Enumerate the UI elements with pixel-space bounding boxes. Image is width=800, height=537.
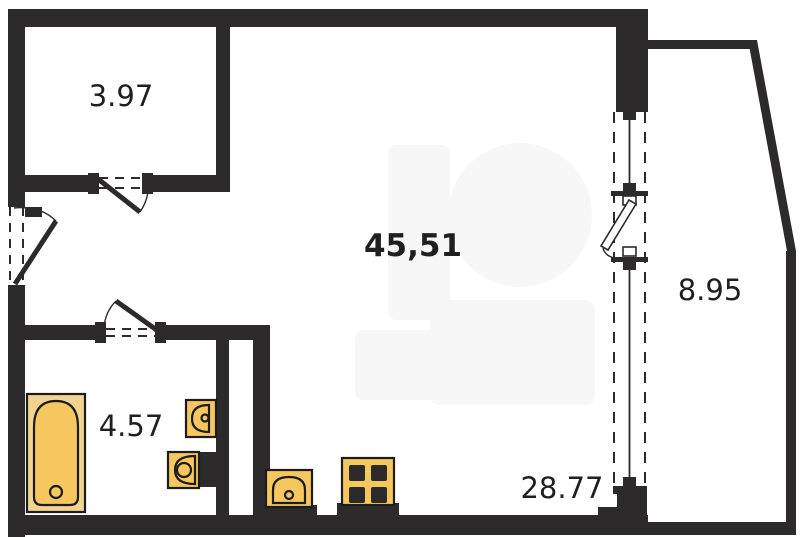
floor-plan: 3.97 45,51 8.95 4.57 28.77 xyxy=(0,0,800,537)
bathroom-area-label: 4.57 xyxy=(99,409,164,443)
balcony-area-label: 8.95 xyxy=(678,273,743,307)
bathroom-door xyxy=(104,301,158,336)
window-sash xyxy=(601,196,636,256)
total-area-label: 28.77 xyxy=(520,471,603,505)
window-wall xyxy=(603,112,645,486)
kitchen-sink-drain xyxy=(285,491,293,499)
watermark xyxy=(355,143,595,405)
fixtures xyxy=(27,394,399,517)
bathtub-drain xyxy=(50,486,62,498)
room-door xyxy=(98,178,149,212)
storage-area-label: 3.97 xyxy=(89,79,154,113)
toilet-flush xyxy=(177,463,191,477)
toilet-cistern xyxy=(199,452,218,487)
floor-plan-drawing: 3.97 45,51 8.95 4.57 28.77 xyxy=(0,0,800,537)
living-area-label: 45,51 xyxy=(364,228,462,264)
washbasin-faucet xyxy=(202,415,209,422)
entrance-door xyxy=(10,207,56,285)
